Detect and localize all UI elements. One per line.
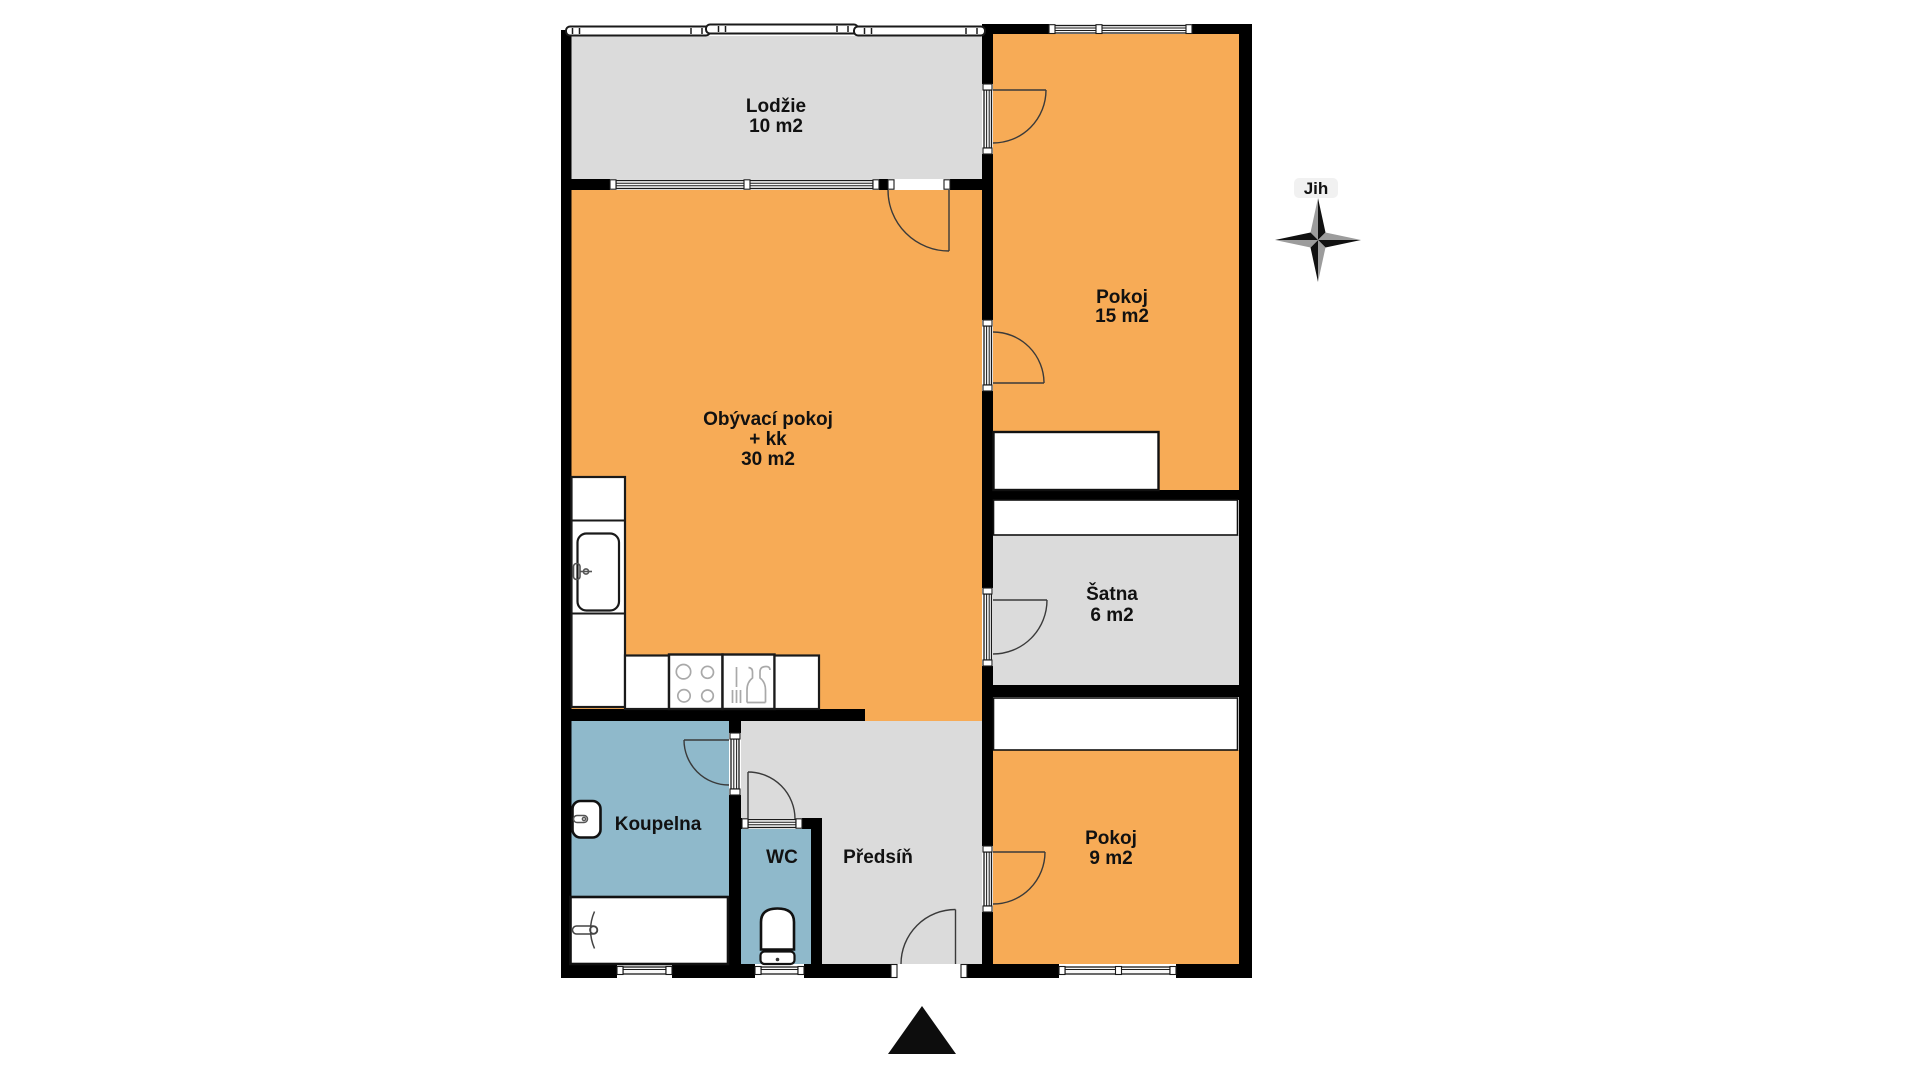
svg-text:Obývací pokoj: Obývací pokoj (703, 409, 833, 430)
svg-text:Pokoj: Pokoj (1096, 287, 1148, 308)
svg-text:Koupelna: Koupelna (615, 814, 702, 835)
svg-text:6 m2: 6 m2 (1090, 605, 1133, 626)
svg-text:9 m2: 9 m2 (1089, 848, 1132, 869)
svg-text:15 m2: 15 m2 (1095, 306, 1149, 327)
svg-text:Pokoj: Pokoj (1085, 828, 1137, 849)
svg-text:+ kk: + kk (749, 429, 787, 450)
svg-text:Lodžie: Lodžie (746, 96, 806, 117)
svg-text:WC: WC (766, 847, 798, 868)
svg-text:Předsíň: Předsíň (843, 847, 913, 868)
svg-text:30 m2: 30 m2 (741, 449, 795, 470)
svg-text:10 m2: 10 m2 (749, 116, 803, 137)
svg-text:Šatna: Šatna (1086, 583, 1138, 605)
svg-text:Jih: Jih (1304, 179, 1329, 198)
